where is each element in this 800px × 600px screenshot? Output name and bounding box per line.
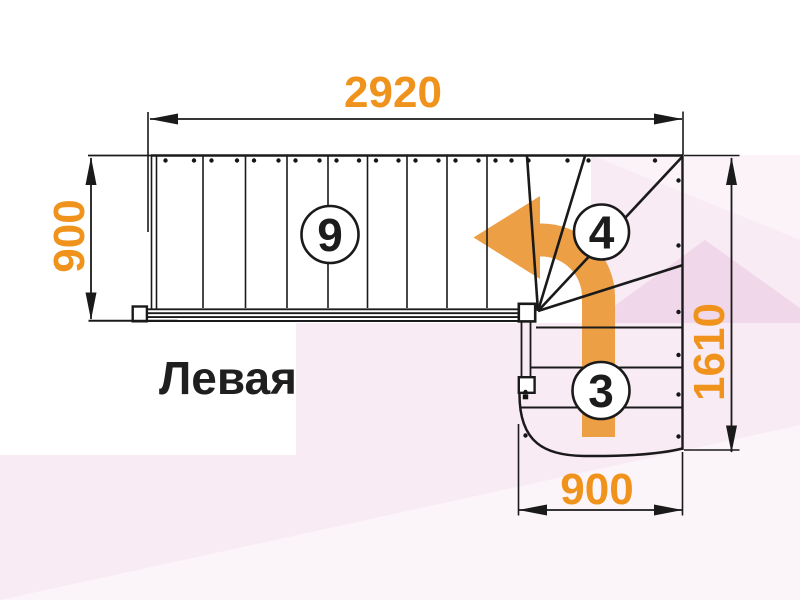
badge-winder-label: 4	[589, 207, 615, 259]
badge-lower-label: 3	[588, 365, 614, 417]
badge-lower-flight: 3	[573, 362, 630, 419]
dim-top-label: 2920	[344, 68, 442, 117]
stair-plan-canvas: 2920 900 1610 900 9 4 3 Левая	[0, 0, 800, 600]
badge-upper-flight: 9	[302, 206, 359, 263]
dim-bottom-label: 900	[560, 465, 633, 514]
dim-left-label: 900	[45, 199, 94, 272]
post-foot-mark	[523, 394, 528, 399]
dim-right-label: 1610	[685, 303, 734, 401]
newel-post-corner	[519, 304, 535, 322]
stair-plan-drawing: 2920 900 1610 900 9 4 3 Левая	[0, 0, 800, 600]
page-title: Левая	[159, 352, 297, 404]
newel-post-left	[133, 307, 147, 322]
badge-winder: 4	[574, 205, 629, 260]
badge-upper-label: 9	[317, 209, 343, 261]
